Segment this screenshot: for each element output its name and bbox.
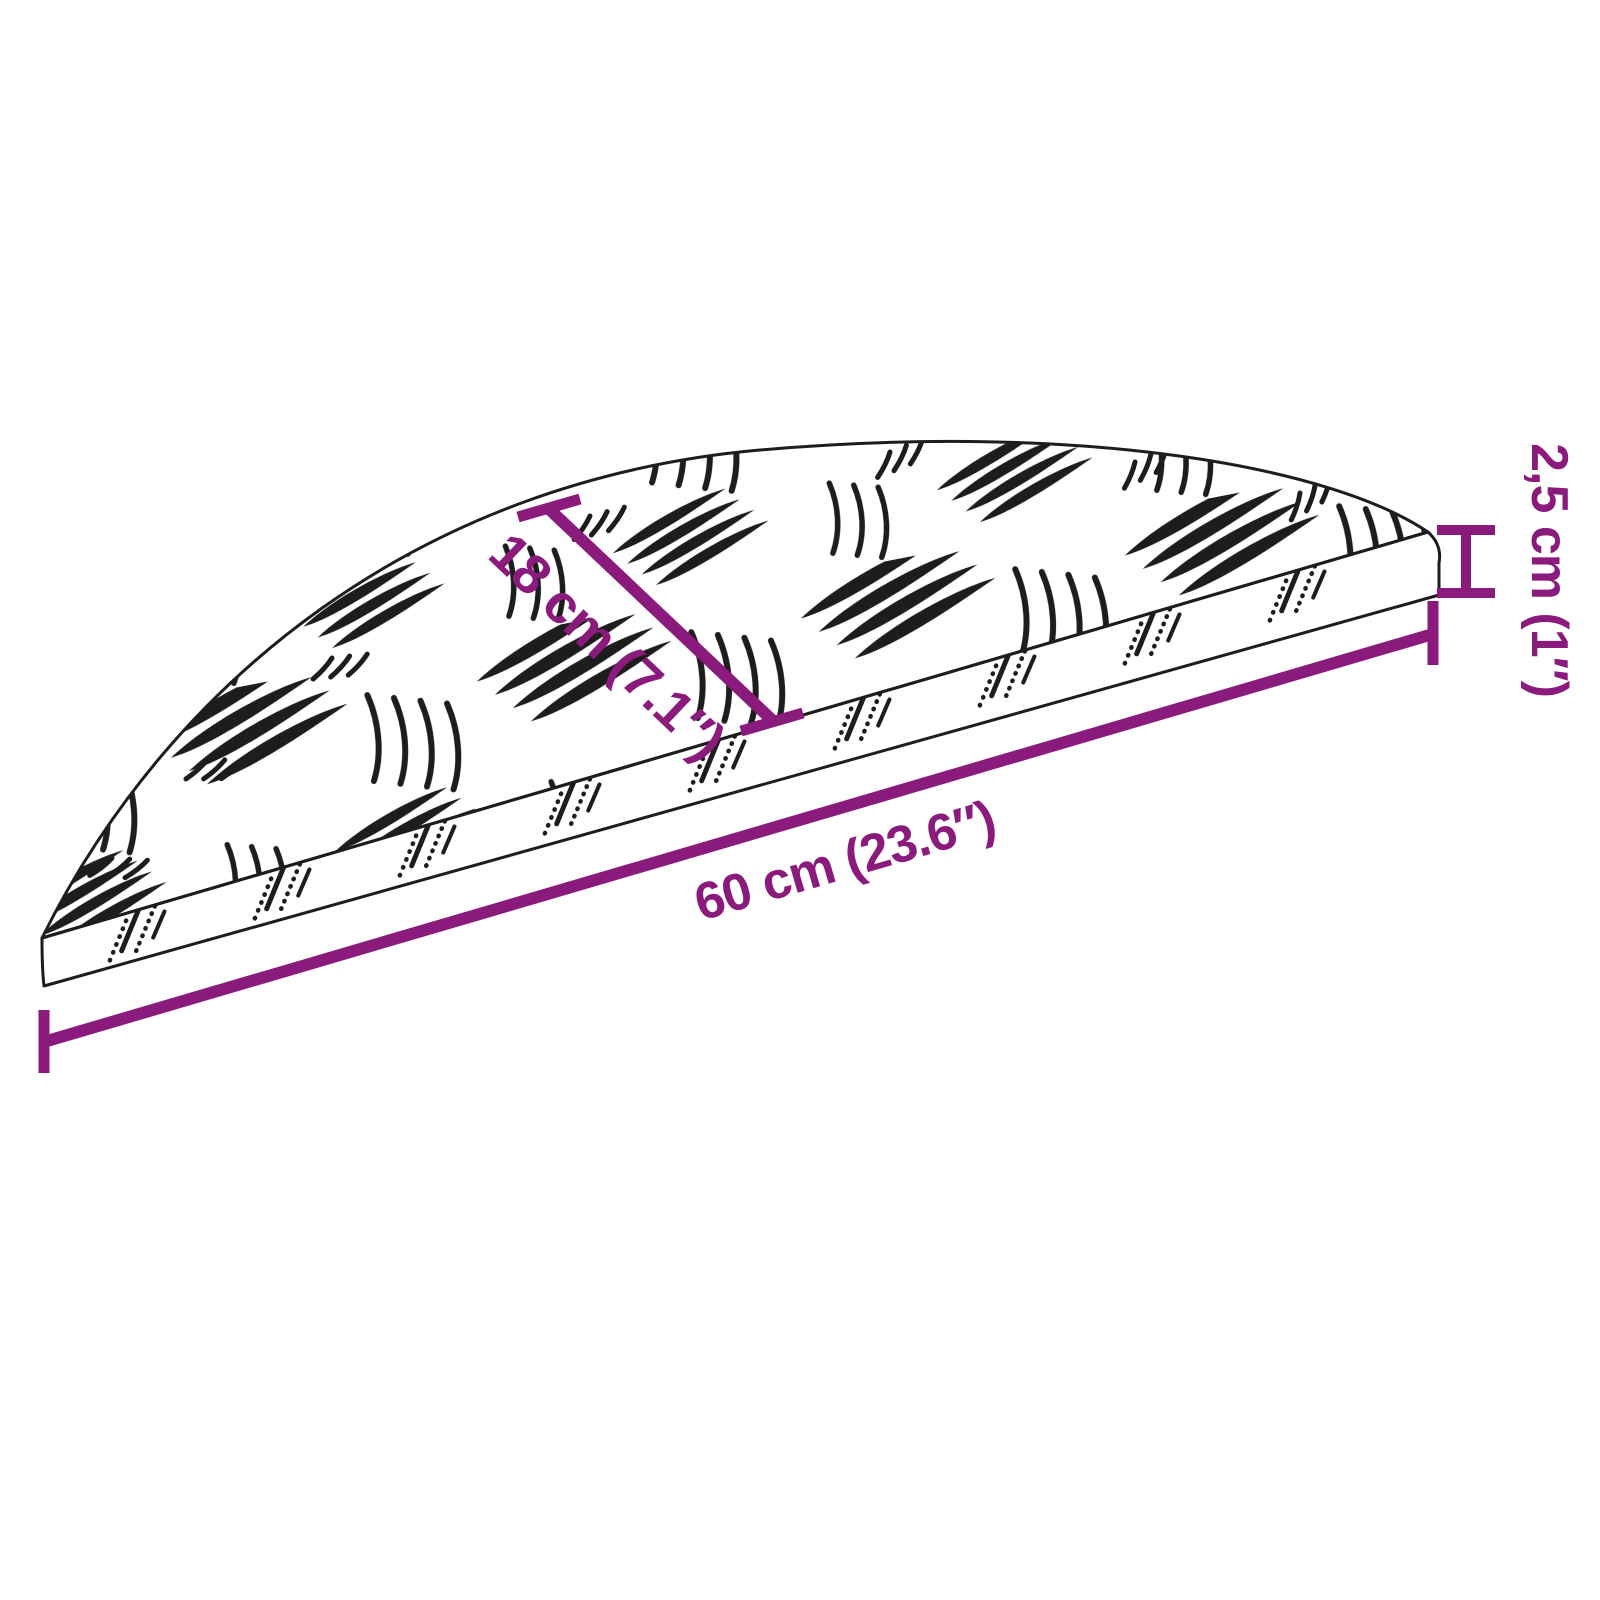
height-dimension: 2,5 cm (1″) xyxy=(1437,443,1578,697)
dimension-diagram: 18 cm (7.1″) 60 cm (23.6″) 2,5 cm (1″) xyxy=(0,0,1600,1600)
diagram-canvas: 18 cm (7.1″) 60 cm (23.6″) 2,5 cm (1″) xyxy=(0,0,1600,1600)
height-dimension-label: 2,5 cm (1″) xyxy=(1520,443,1578,697)
